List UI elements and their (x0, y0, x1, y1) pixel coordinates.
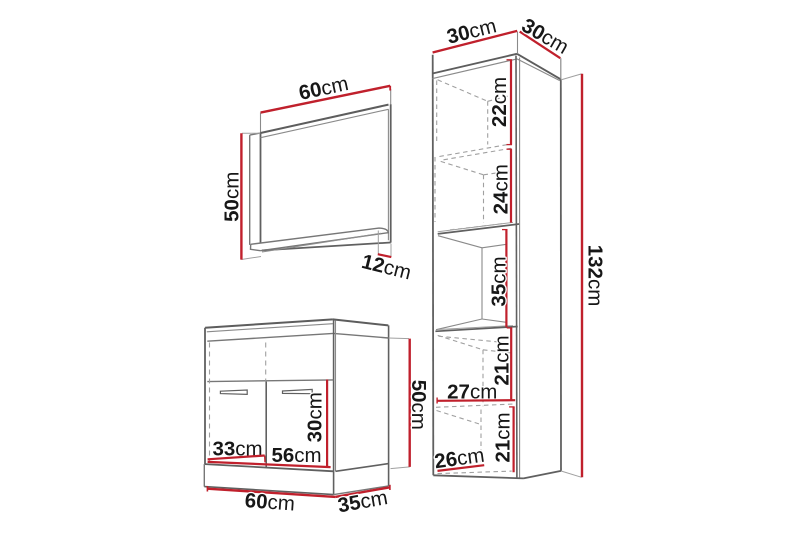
svg-text:30cm: 30cm (303, 392, 326, 442)
svg-text:24cm: 24cm (489, 164, 512, 214)
svg-text:35cm: 35cm (336, 486, 389, 517)
svg-text:132cm: 132cm (584, 245, 607, 307)
svg-text:21cm: 21cm (491, 412, 514, 462)
svg-text:30cm: 30cm (518, 14, 573, 59)
svg-text:21cm: 21cm (490, 335, 513, 385)
svg-text:12cm: 12cm (359, 250, 413, 284)
svg-text:50cm: 50cm (408, 380, 431, 430)
svg-text:60cm: 60cm (297, 72, 351, 105)
svg-text:60cm: 60cm (244, 489, 296, 515)
svg-text:56cm: 56cm (271, 444, 321, 467)
svg-text:50cm: 50cm (220, 172, 243, 222)
svg-text:22cm: 22cm (487, 77, 510, 127)
svg-text:35cm: 35cm (487, 256, 510, 306)
